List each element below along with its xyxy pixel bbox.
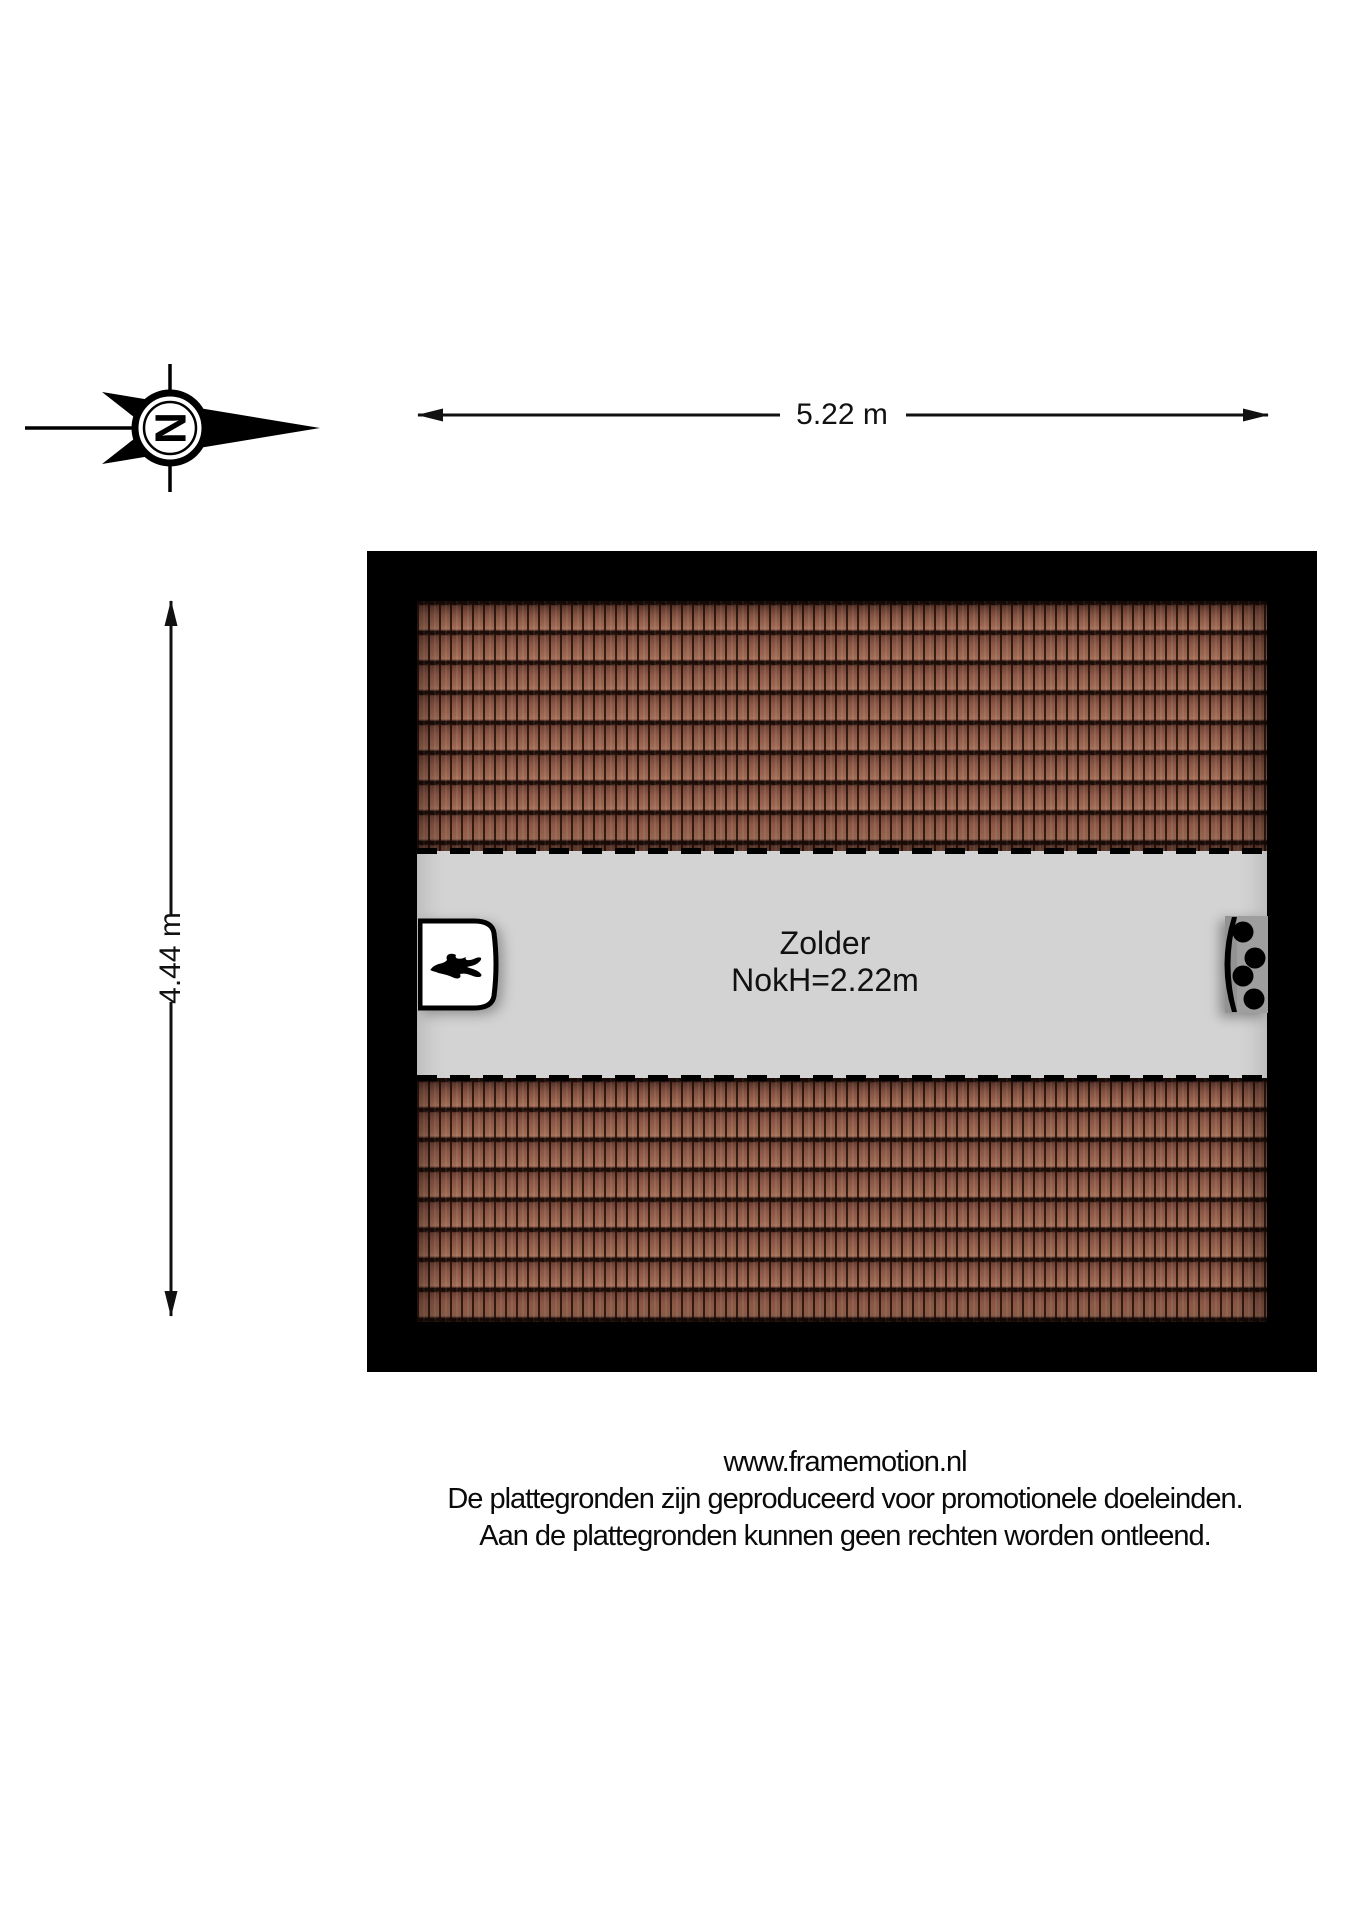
footer-disclaimer-line2: Aan de plattegronden kunnen geen rechten…	[345, 1518, 1345, 1555]
roof-tiles-bottom	[417, 1078, 1267, 1322]
attic-floor: Zolder NokH=2.22m	[417, 601, 1267, 1322]
unit-dot-2	[1245, 948, 1266, 969]
roof-tiles-top	[417, 601, 1267, 851]
ridge-dash-line-bottom	[417, 1075, 1267, 1081]
height-dimension-label: 4.44 m	[154, 896, 190, 1020]
footer: www.framemotion.nl De plattegronden zijn…	[345, 1444, 1345, 1555]
room-name: Zolder	[417, 925, 1233, 962]
wall-unit-icon	[1216, 915, 1268, 1014]
building-outline: Zolder NokH=2.22m	[367, 551, 1317, 1372]
compass-letter: N	[146, 412, 195, 444]
unit-dot-3	[1233, 966, 1254, 987]
footer-disclaimer-line1: De plattegronden zijn geproduceerd voor …	[345, 1481, 1345, 1518]
floorplan-page: N 5.22 m 4.44 m Zolder NokH=2.22m	[0, 0, 1358, 1920]
unit-dot-1	[1233, 922, 1254, 943]
unit-dot-4	[1244, 989, 1265, 1010]
boiler-icon	[418, 918, 500, 1011]
north-compass-icon: N	[15, 355, 330, 505]
width-dimension-label: 5.22 m	[762, 398, 922, 432]
ridge-dash-line-top	[417, 848, 1267, 854]
ridge-height-label: NokH=2.22m	[417, 962, 1233, 999]
footer-website: www.framemotion.nl	[345, 1444, 1345, 1481]
room-label: Zolder NokH=2.22m	[417, 925, 1233, 999]
